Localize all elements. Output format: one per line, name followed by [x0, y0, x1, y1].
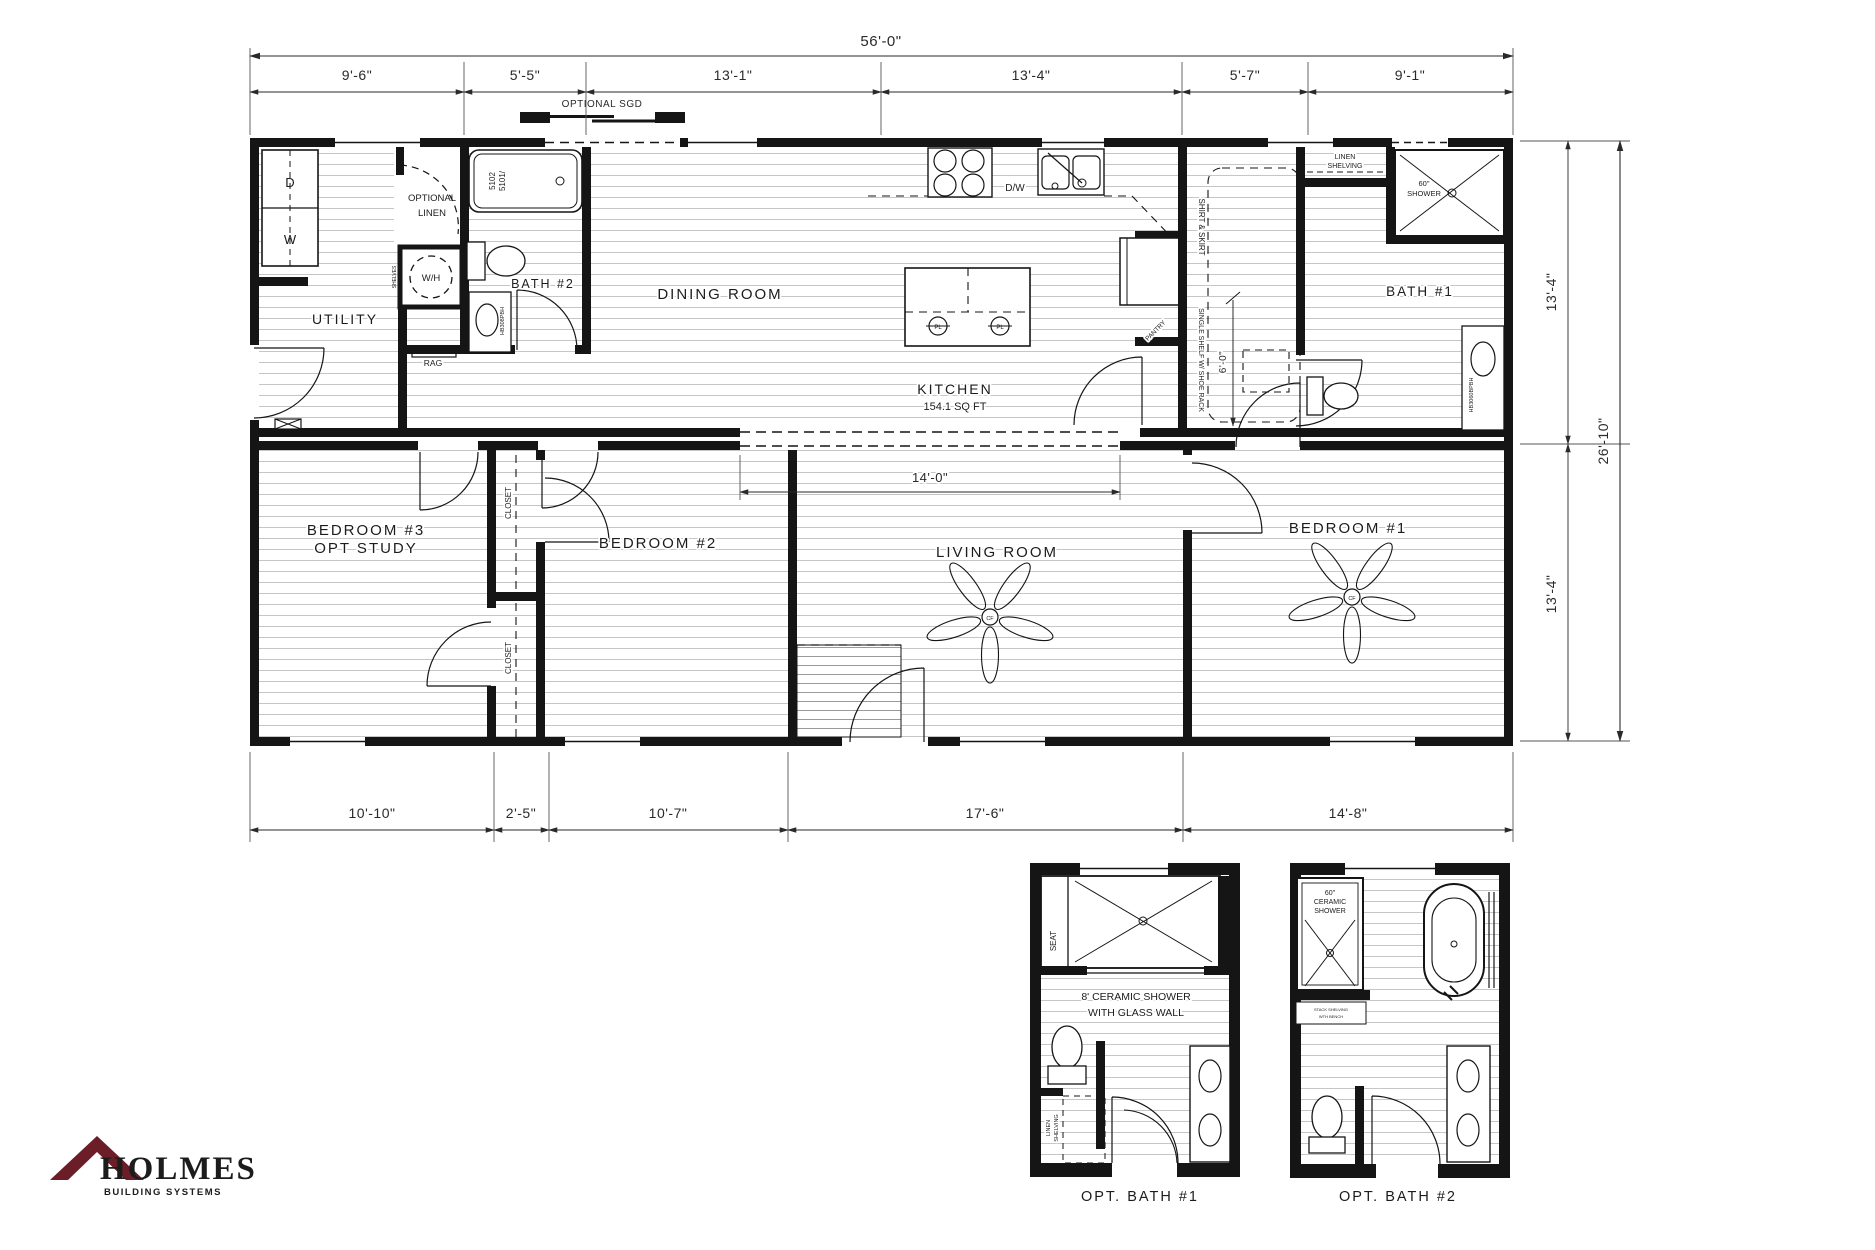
closet-label-1: CLOSET: [504, 487, 513, 519]
pendant-light-2: PL: [996, 325, 1004, 331]
bath1-shower-size: 60": [1418, 179, 1429, 188]
closet-single-shelf: SINGLE SHELF W/ SHOE RACK: [1197, 308, 1204, 412]
dim-top-4: 13'-4": [1012, 67, 1051, 83]
dim-top-2: 5'-5": [510, 67, 540, 83]
optbath1-linen-1: LINEN: [1046, 1120, 1052, 1136]
optbath1-caption-1: 8' CERAMIC SHOWER: [1081, 991, 1191, 1003]
vanity-bath2-model: HB308PBH: [500, 307, 506, 335]
dim-bottom-4: 17'-6": [966, 805, 1005, 821]
tub-model-1: 5102: [488, 172, 497, 190]
fixture-water-heater: W/H: [422, 273, 441, 284]
room-dining: DINING ROOM: [657, 286, 782, 303]
dim-top-5: 5'-7": [1230, 67, 1260, 83]
dim-top-6: 9'-1": [1395, 67, 1425, 83]
fixture-rag: RAG: [424, 358, 442, 368]
logo-tagline: BUILDING SYSTEMS: [104, 1187, 222, 1198]
crossbox-symbol: [275, 419, 301, 429]
pendant-light-1: PL: [934, 325, 942, 331]
room-bedroom2: BEDROOM #2: [599, 535, 717, 552]
dim-top-3: 13'-1": [714, 67, 753, 83]
bath1-shower-word: SHOWER: [1407, 189, 1441, 198]
optional-sgd-symbol: [520, 112, 685, 123]
closet-shirt-skirt: SHIRT & SKIRT: [1197, 199, 1206, 256]
optbath2-shower-3: SHOWER: [1314, 908, 1346, 915]
vanity-bath1-model: HB3060BPBH: [1469, 378, 1475, 413]
dim-right-overall: 26'-10": [1595, 418, 1611, 465]
optional-sgd-label: OPTIONAL SGD: [562, 99, 643, 110]
optbath1-linen-2: SHELVING: [1054, 1114, 1060, 1141]
dim-kitchen-opening: 14'-0": [912, 470, 948, 485]
room-bath1: BATH #1: [1386, 284, 1454, 299]
room-bedroom1: BEDROOM #1: [1289, 520, 1407, 537]
dim-closet-depth: 6'-0": [1218, 351, 1229, 373]
optbath1-seat: SEAT: [1049, 931, 1058, 951]
bath1-linen-2: SHELVING: [1328, 163, 1363, 170]
optbath1-title: OPT. BATH #1: [1081, 1189, 1199, 1205]
fixture-washer: W: [284, 232, 297, 247]
optbath2-shelf-2: WTH BENCH: [1319, 1014, 1343, 1019]
optional-linen-1: OPTIONAL: [408, 193, 456, 204]
dim-bottom-3: 10'-7": [649, 805, 688, 821]
fixture-shelves: SHELVES: [392, 265, 398, 288]
room-utility: UTILITY: [312, 311, 378, 327]
dim-right-upper: 13'-4": [1543, 273, 1559, 312]
dim-bottom-5: 14'-8": [1329, 805, 1368, 821]
optional-linen-2: LINEN: [418, 208, 446, 219]
optbath2-shower-2: CERAMIC: [1314, 899, 1346, 906]
dim-bottom-1: 10'-10": [349, 805, 396, 821]
opt-bath1: [1030, 863, 1240, 1177]
room-living: LIVING ROOM: [936, 544, 1058, 561]
tub-model-2: 5101/: [498, 170, 507, 191]
room-bath2: BATH #2: [511, 277, 575, 291]
optbath2-shower-1: 60": [1325, 890, 1336, 897]
kitchen-area: 154.1 SQ FT: [924, 401, 987, 413]
ceiling-fan-label-1: CF: [986, 616, 994, 622]
room-kitchen: KITCHEN: [917, 381, 992, 397]
optbath1-caption-2: WITH GLASS WALL: [1088, 1007, 1184, 1019]
floor-plan-page: HOLMES BUILDING SYSTEMS 56'-0" 9'-6" 5'-…: [0, 0, 1875, 1250]
dim-right-lower: 13'-4": [1543, 575, 1559, 614]
bath1-linen-1: LINEN: [1335, 154, 1356, 161]
floor-plan-drawing: HOLMES BUILDING SYSTEMS 56'-0" 9'-6" 5'-…: [0, 0, 1875, 1250]
room-bedroom3-alt: OPT STUDY: [314, 540, 418, 557]
optbath2-shelf-1: STACK SHELVING: [1314, 1007, 1348, 1012]
ceiling-fan-label-2: CF: [1348, 596, 1356, 602]
fixture-dishwasher: D/W: [1005, 183, 1025, 194]
logo-name: HOLMES: [100, 1151, 257, 1187]
fixture-dryer: D: [285, 175, 294, 190]
dim-top-1: 9'-6": [342, 67, 372, 83]
dim-bottom-2: 2'-5": [506, 805, 536, 821]
room-bedroom3: BEDROOM #3: [307, 522, 425, 539]
holmes-logo: HOLMES BUILDING SYSTEMS: [50, 1136, 257, 1198]
dim-overall-width: 56'-0": [860, 33, 901, 50]
closet-label-2: CLOSET: [504, 642, 513, 674]
optbath2-title: OPT. BATH #2: [1339, 1189, 1457, 1205]
